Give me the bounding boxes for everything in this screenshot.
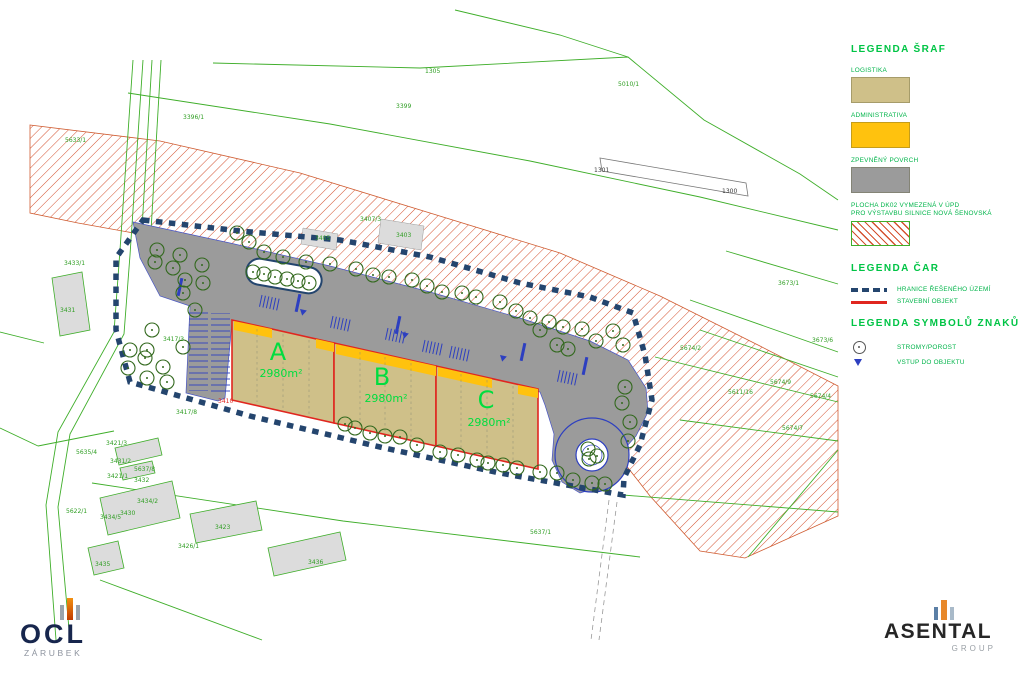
legend-symbol-trees: STROMY/POROST	[851, 341, 1021, 354]
corridor-hatch-swatch	[851, 221, 910, 246]
legend-item-logistics-label: LOGISTIKA	[851, 67, 1021, 74]
legend-symbols-title: LEGENDA SYMBOLŮ ZNAKŮ	[851, 318, 1021, 329]
ocl-logo-bars-icon	[60, 596, 150, 620]
parcel-number-label: 3399	[396, 103, 411, 110]
legend-line-boundary: HRANICE ŘEŠENÉHO ÚZEMÍ	[851, 286, 1021, 293]
site-plan-page: 130533993396/15633/13433/134315010/11301…	[0, 0, 1024, 673]
parcel-number-label: 5633/1	[65, 137, 86, 144]
legend-hatch-title: LEGENDA ŠRAF	[851, 44, 1021, 55]
parcel-number-label: 3673/6	[812, 337, 833, 344]
entrance-symbol-label: VSTUP DO OBJEKTU	[897, 359, 965, 366]
parcel-number-label: 3423	[215, 524, 230, 531]
ocl-logo: OCL ZÁRUBEK	[20, 596, 150, 658]
parcel-number-label: 3421/1	[107, 473, 128, 480]
parcel-number-label: 3431	[60, 307, 75, 314]
asental-logo-bars-icon	[934, 596, 1016, 620]
parcel-number-label: 3426/1	[178, 543, 199, 550]
parcel-number-label: 5637/8	[134, 466, 155, 473]
parcel-number-label: 5674/7	[782, 425, 803, 432]
parcel-number-label: 5674/2	[680, 345, 701, 352]
parcel-number-label: 5635/4	[76, 449, 97, 456]
parcel-number-label: 3417/3	[163, 336, 184, 343]
parcel-number-label: 5622/1	[66, 508, 87, 515]
asental-logo-name: ASENTAL	[884, 620, 1016, 644]
legend-line-building: STAVEBNÍ OBJEKT	[851, 298, 1021, 305]
legend: LEGENDA ŠRAF LOGISTIKA ADMINISTRATIVA ZP…	[851, 44, 1021, 371]
parcel-number-label: 3434/2	[137, 498, 158, 505]
hall-c-name: C	[478, 386, 495, 414]
parcel-number-label: 3435	[95, 561, 110, 568]
parcel-number-label: 1305	[425, 68, 440, 75]
legend-item-admin-label: ADMINISTRATIVA	[851, 112, 1021, 119]
asental-logo: ASENTAL GROUP	[884, 596, 1016, 653]
parcel-number-label: 1301	[594, 167, 609, 174]
trees-symbol-label: STROMY/POROST	[897, 344, 956, 351]
paved-swatch	[851, 167, 910, 193]
building-line-sample	[851, 301, 887, 304]
parcel-number-label: 3433/1	[64, 260, 85, 267]
parcel-number-label: 3407/3	[360, 216, 381, 223]
parcel-number-label: 5674/9	[770, 379, 791, 386]
boundary-line-label: HRANICE ŘEŠENÉHO ÚZEMÍ	[897, 286, 991, 293]
legend-symbol-entrance: VSTUP DO OBJEKTU	[851, 359, 1021, 366]
corridor-label-line1: PLOCHA DK02 VYMEZENÁ V ÚPD	[851, 202, 1021, 210]
hall-b-area: 2980m²	[364, 392, 407, 405]
hall-a-name: A	[270, 338, 287, 366]
parcel-number-label: 3673/1	[778, 280, 799, 287]
tree-circle-icon	[853, 341, 866, 354]
ocl-logo-name: OCL	[20, 620, 150, 648]
parcel-number-label: 1300	[722, 188, 737, 195]
parcel-number-label: 5010/1	[618, 81, 639, 88]
legend-lines-title: LEGENDA ČAR	[851, 263, 1021, 274]
logistics-swatch	[851, 77, 910, 103]
parcel-number-label: 5611/16	[728, 389, 753, 396]
parcel-number-label: 3396/1	[183, 114, 204, 121]
boundary-line-sample	[851, 288, 887, 292]
parcel-number-label: 3405	[315, 235, 330, 242]
dashed-survey-lines	[591, 500, 617, 640]
asental-logo-subtitle: GROUP	[884, 644, 996, 653]
parcel-number-label: 3417/8	[176, 409, 197, 416]
parcel-number-label: 3421/3	[106, 440, 127, 447]
parcel-number-label: 3430	[120, 510, 135, 517]
parcel-number-label: 3432	[134, 477, 149, 484]
parcel-number-label: 5674/4	[810, 393, 831, 400]
parcel-number-label: 3403	[396, 232, 411, 239]
corridor-label-line2: PRO VÝSTAVBU SILNICE NOVÁ ŠENOVSKÁ	[851, 210, 1021, 218]
legend-item-paved-label: ZPEVNĚNÝ POVRCH	[851, 157, 1021, 164]
parcel-number-label: 3436	[308, 559, 323, 566]
parcel-number-label: 5637/1	[530, 529, 551, 536]
admin-swatch	[851, 122, 910, 148]
hall-a-area: 2980m²	[259, 367, 302, 380]
parcel-number-label: 3410	[218, 398, 233, 405]
hall-c-area: 2980m²	[467, 416, 510, 429]
entrance-triangle-icon	[854, 359, 862, 366]
ocl-logo-subtitle: ZÁRUBEK	[24, 648, 150, 658]
hall-b-name: B	[374, 363, 390, 391]
parcel-number-label: 3431/2	[110, 458, 131, 465]
legend-item-corridor-label: PLOCHA DK02 VYMEZENÁ V ÚPD PRO VÝSTAVBU …	[851, 202, 1021, 218]
building-line-label: STAVEBNÍ OBJEKT	[897, 298, 958, 305]
parcel-number-label: 3434/5	[100, 514, 121, 521]
